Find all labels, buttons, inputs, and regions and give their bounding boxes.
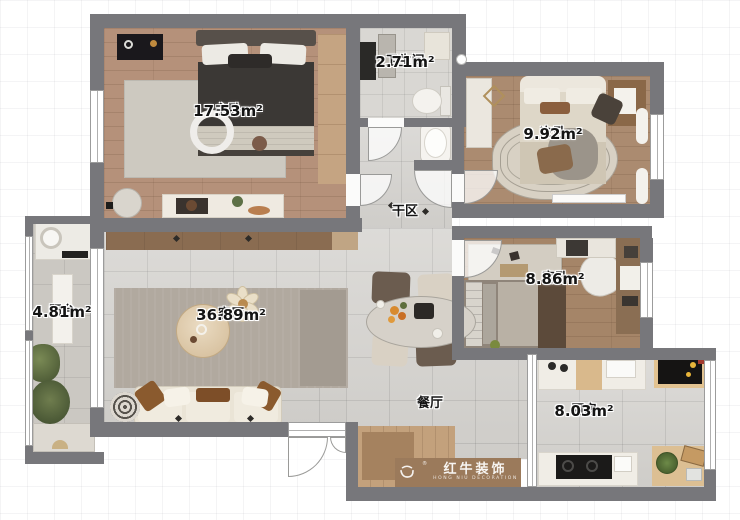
kitchen-sliding-door — [527, 354, 537, 487]
entry-door-swing — [330, 437, 346, 453]
entry-door-frame — [288, 422, 346, 437]
curtain — [636, 108, 648, 144]
pillow — [228, 54, 272, 68]
balcony-sliding-door — [90, 248, 104, 408]
wall — [90, 218, 362, 232]
room-area: 9.92m² — [523, 127, 582, 142]
brand-text: 红牛装饰 HONG NIU DECORATION — [433, 463, 518, 482]
decor — [622, 296, 638, 306]
wall — [650, 180, 664, 218]
pillow — [163, 386, 191, 407]
vegetable-basket — [656, 452, 678, 474]
window — [704, 360, 716, 470]
wall — [452, 204, 664, 218]
room-name: 干区 — [392, 205, 418, 218]
tv-cabinet — [106, 230, 332, 250]
cushion — [252, 136, 267, 151]
plant — [232, 196, 243, 207]
ceiling-light-icon — [456, 54, 467, 65]
pillow — [196, 388, 230, 402]
cooktop — [658, 358, 702, 384]
tray — [414, 303, 434, 319]
room-area: 17.53m² — [193, 104, 263, 119]
cup — [190, 336, 197, 343]
bathtub-basin — [424, 128, 447, 158]
pillow — [483, 284, 496, 344]
kitchen-counter — [576, 356, 602, 390]
wall — [360, 118, 368, 127]
washing-machine — [40, 227, 62, 249]
low-table — [500, 264, 528, 277]
floorplan-canvas: 主卧 17.53m² 卫生间 2.71m² 次卧 9.92m² 干区 客卧 8.… — [0, 0, 740, 520]
wall — [25, 452, 104, 464]
wall — [452, 76, 464, 174]
sink — [548, 362, 556, 370]
entry-door-swing — [288, 437, 328, 477]
bed-blanket — [498, 282, 538, 346]
tv-cabinet — [332, 230, 358, 250]
lamp-icon — [124, 40, 133, 49]
flowers — [398, 312, 406, 320]
appliance — [606, 360, 636, 378]
decor — [624, 246, 638, 258]
decor — [52, 440, 68, 449]
room-area: 2.71m² — [375, 55, 434, 70]
wardrobe — [318, 34, 346, 184]
room-area: 4.81m² — [32, 305, 91, 320]
decor — [106, 202, 113, 209]
window — [25, 340, 33, 446]
decor — [686, 372, 691, 377]
appliance — [614, 456, 632, 472]
room-name: 餐厅 — [417, 397, 443, 410]
window — [650, 114, 664, 180]
burner — [586, 460, 598, 472]
registered-mark: ® — [422, 461, 427, 467]
stool — [112, 188, 142, 218]
pillow — [241, 386, 269, 407]
flowers — [400, 302, 407, 309]
wall — [90, 14, 466, 28]
plate — [432, 328, 443, 339]
wall — [640, 238, 653, 262]
side-table — [110, 392, 140, 422]
cup — [196, 324, 207, 335]
paper — [620, 266, 640, 290]
wall — [90, 14, 104, 90]
wall — [452, 226, 652, 238]
wall — [90, 232, 104, 248]
wall — [650, 76, 664, 114]
wardrobe — [466, 78, 492, 148]
wall — [452, 226, 464, 240]
wall — [704, 470, 716, 487]
tray — [248, 206, 270, 215]
appliance — [686, 468, 702, 481]
wall — [346, 487, 716, 501]
wall — [414, 160, 452, 170]
decor — [566, 240, 588, 256]
door-opening — [346, 174, 360, 206]
room-area: 8.86m² — [525, 272, 584, 287]
curtain — [636, 168, 648, 204]
wall — [90, 408, 104, 422]
plant — [30, 380, 70, 424]
bull-icon — [398, 464, 416, 482]
wall — [404, 118, 452, 127]
burner — [562, 460, 574, 472]
bowl — [186, 200, 197, 211]
door-opening — [368, 118, 404, 127]
sink — [560, 364, 568, 372]
wall — [452, 348, 716, 360]
plate — [376, 300, 385, 309]
wall — [346, 28, 360, 174]
window — [640, 262, 653, 318]
decor — [690, 362, 696, 368]
wall — [90, 422, 288, 437]
bed-foot — [538, 280, 566, 348]
toilet — [412, 88, 442, 114]
window — [90, 90, 104, 163]
door-opening — [452, 240, 464, 276]
lamp-icon — [150, 40, 157, 47]
room-area: 36.89m² — [196, 308, 266, 323]
wall — [25, 216, 104, 224]
brand-name: 红牛装饰 — [443, 463, 507, 476]
flowers — [388, 316, 395, 323]
vent — [552, 194, 626, 203]
brand-watermark: ® 红牛装饰 HONG NIU DECORATION — [395, 458, 521, 487]
rug — [300, 290, 346, 386]
door-opening — [452, 174, 464, 202]
brand-subtitle: HONG NIU DECORATION — [433, 477, 518, 482]
pillow — [540, 102, 570, 114]
wall — [452, 62, 664, 76]
wall — [346, 422, 358, 487]
room-area: 8.03m² — [554, 404, 613, 419]
wall — [640, 318, 653, 348]
wall — [346, 206, 360, 218]
decor — [62, 251, 88, 258]
